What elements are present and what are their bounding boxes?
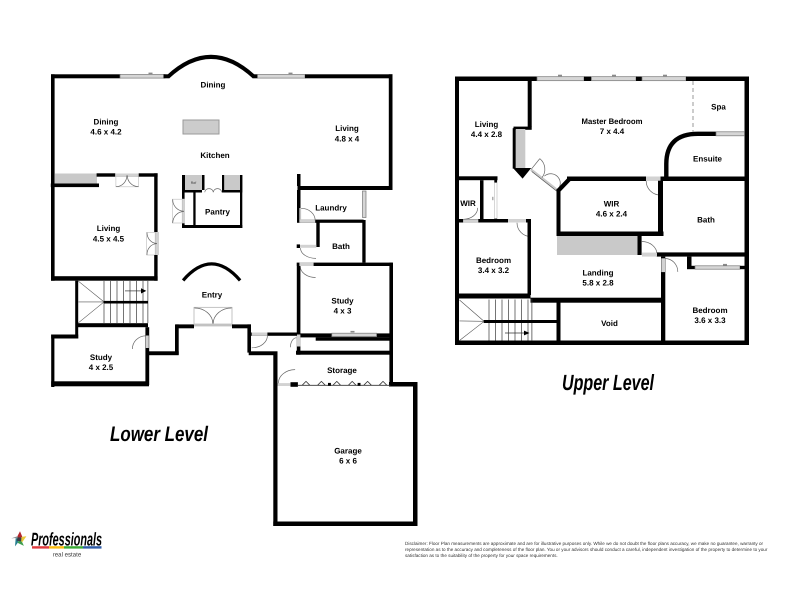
svg-text:Dining: Dining bbox=[94, 117, 119, 126]
svg-text:4 x 2.5: 4 x 2.5 bbox=[89, 363, 114, 372]
svg-text:Bath: Bath bbox=[332, 242, 350, 251]
svg-text:Ensuite: Ensuite bbox=[693, 154, 722, 163]
svg-text:Laundry: Laundry bbox=[315, 204, 347, 213]
svg-text:Bath: Bath bbox=[697, 216, 715, 225]
svg-text:WIR: WIR bbox=[604, 199, 620, 208]
svg-text:Dining: Dining bbox=[201, 81, 226, 90]
svg-text:Entry: Entry bbox=[202, 290, 223, 299]
svg-text:Ref: Ref bbox=[191, 181, 196, 185]
svg-text:Study: Study bbox=[90, 353, 113, 362]
svg-text:satisfaction as to the suitabi: satisfaction as to the suitability of th… bbox=[405, 553, 558, 558]
svg-text:Lower Level: Lower Level bbox=[110, 423, 209, 446]
svg-text:Void: Void bbox=[601, 319, 618, 328]
svg-text:WIR: WIR bbox=[460, 199, 476, 208]
svg-text:4.4 x 2.8: 4.4 x 2.8 bbox=[471, 130, 503, 139]
svg-text:Living: Living bbox=[335, 124, 359, 133]
svg-text:representation as to the accur: representation as to the accuracy and co… bbox=[405, 547, 768, 552]
svg-text:Kitchen: Kitchen bbox=[200, 151, 229, 160]
svg-text:Landing: Landing bbox=[582, 268, 613, 277]
svg-text:Living: Living bbox=[475, 120, 499, 129]
svg-text:Disclaimer: Floor Plan measure: Disclaimer: Floor Plan measurements are … bbox=[405, 541, 764, 546]
svg-text:Upper Level: Upper Level bbox=[562, 370, 655, 395]
svg-text:3.4 x 3.2: 3.4 x 3.2 bbox=[478, 266, 510, 275]
svg-text:Pantry: Pantry bbox=[205, 207, 230, 216]
svg-text:4.8 x 4: 4.8 x 4 bbox=[335, 135, 360, 144]
svg-text:5.8 x 2.8: 5.8 x 2.8 bbox=[582, 278, 614, 287]
svg-text:Living: Living bbox=[97, 224, 121, 233]
svg-text:Bedroom: Bedroom bbox=[692, 306, 727, 315]
svg-text:Garage: Garage bbox=[334, 446, 362, 455]
svg-text:4 x 3: 4 x 3 bbox=[334, 307, 352, 316]
svg-text:Storage: Storage bbox=[327, 366, 357, 375]
svg-text:Spa: Spa bbox=[711, 102, 726, 111]
svg-text:4.5 x 4.5: 4.5 x 4.5 bbox=[93, 234, 125, 243]
svg-text:7 x 4.4: 7 x 4.4 bbox=[600, 127, 625, 136]
svg-text:6 x 6: 6 x 6 bbox=[339, 457, 357, 466]
svg-text:Study: Study bbox=[331, 296, 354, 305]
svg-text:3.6 x 3.3: 3.6 x 3.3 bbox=[694, 316, 726, 325]
svg-text:4.6 x 2.4: 4.6 x 2.4 bbox=[596, 209, 628, 218]
svg-text:real estate: real estate bbox=[53, 552, 82, 559]
svg-text:Bedroom: Bedroom bbox=[476, 256, 511, 265]
svg-text:4.6 x 4.2: 4.6 x 4.2 bbox=[90, 128, 122, 137]
svg-text:Master Bedroom: Master Bedroom bbox=[582, 117, 643, 126]
